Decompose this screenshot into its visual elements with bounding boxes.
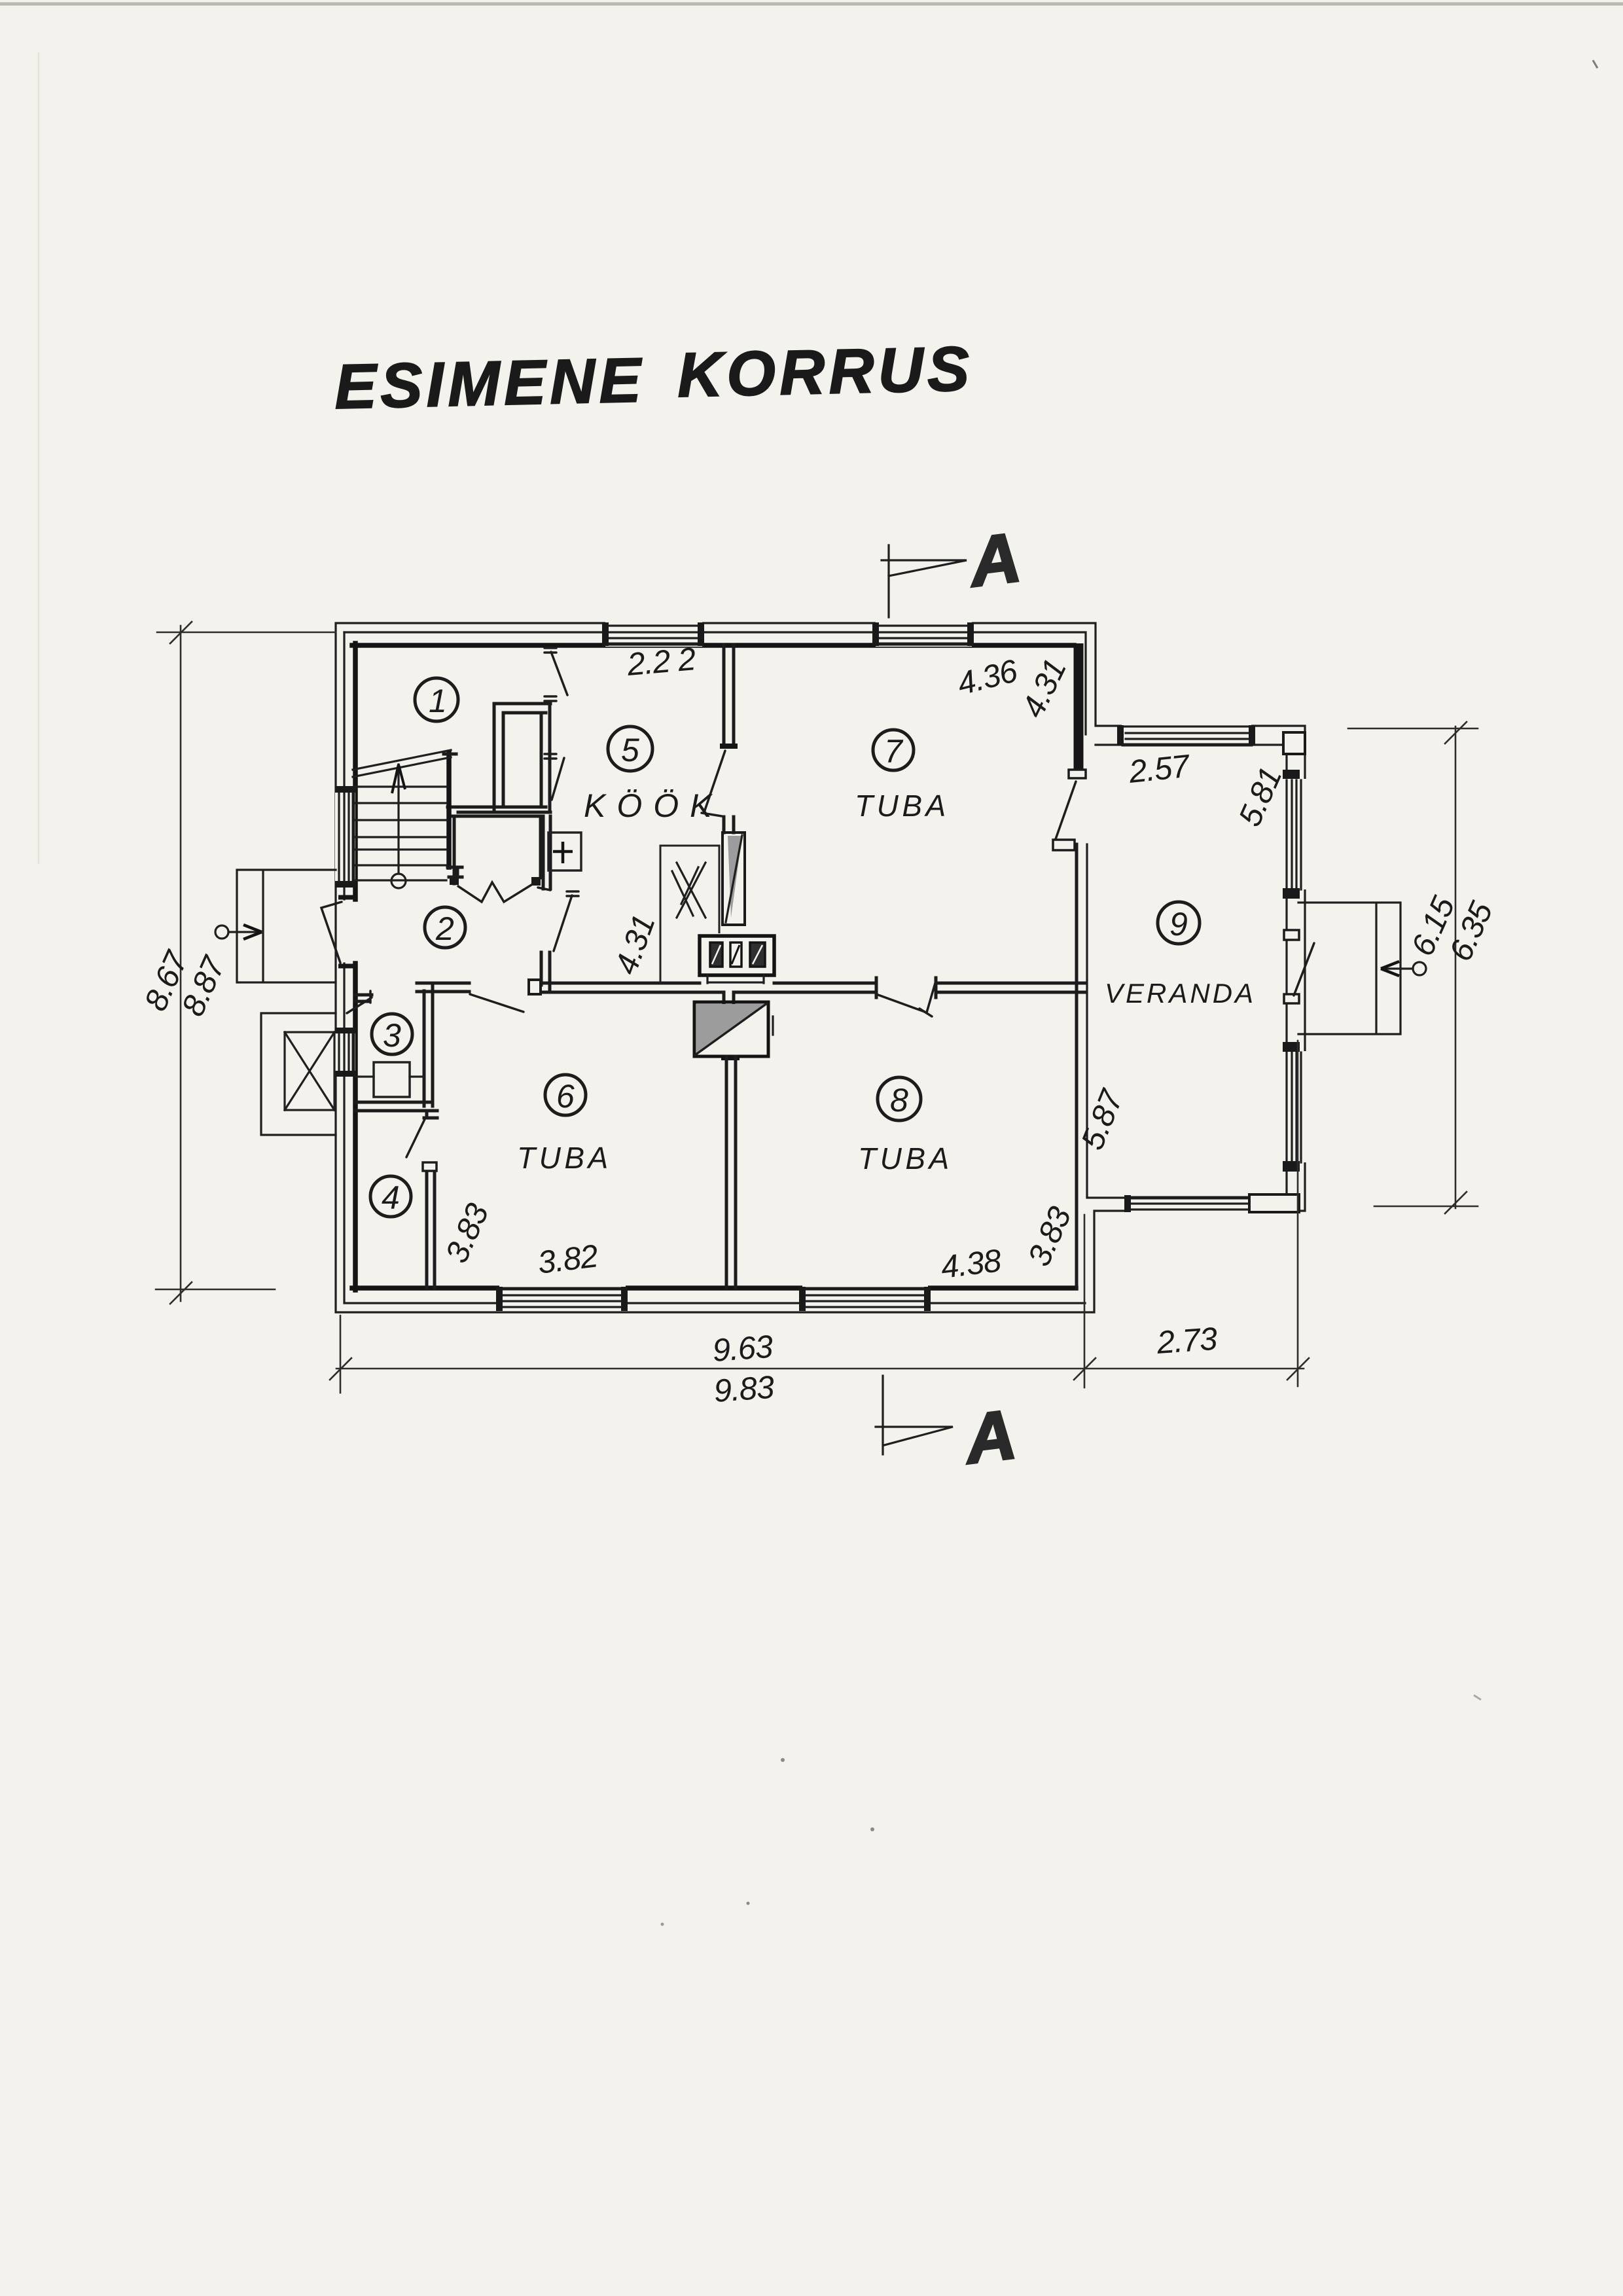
- svg-text:4.38: 4.38: [939, 1243, 1003, 1285]
- svg-text:7: 7: [884, 733, 904, 770]
- svg-text:KÖÖK: KÖÖK: [584, 787, 722, 824]
- svg-text:ESIMENE: ESIMENE: [334, 345, 645, 422]
- svg-text:6: 6: [556, 1078, 575, 1115]
- svg-text:3.82: 3.82: [536, 1238, 600, 1281]
- svg-text:2.57: 2.57: [1127, 748, 1192, 790]
- svg-text:2.2 2: 2.2 2: [625, 641, 697, 683]
- svg-text:3: 3: [383, 1017, 401, 1054]
- svg-text:4: 4: [382, 1179, 400, 1216]
- svg-text:TUBA: TUBA: [855, 789, 950, 823]
- svg-text:8: 8: [890, 1082, 908, 1119]
- svg-text:1: 1: [429, 683, 447, 719]
- svg-text:9.63: 9.63: [711, 1329, 774, 1369]
- svg-text:KORRUS: KORRUS: [677, 334, 974, 410]
- svg-text:VERANDA: VERANDA: [1105, 978, 1256, 1009]
- svg-text:TUBA: TUBA: [858, 1141, 953, 1175]
- svg-text:2.73: 2.73: [1155, 1321, 1219, 1361]
- svg-text:2: 2: [435, 910, 454, 947]
- svg-text:TUBA: TUBA: [517, 1141, 612, 1175]
- svg-text:5: 5: [621, 732, 639, 768]
- svg-text:9: 9: [1169, 906, 1188, 942]
- svg-text:9.83: 9.83: [713, 1370, 776, 1409]
